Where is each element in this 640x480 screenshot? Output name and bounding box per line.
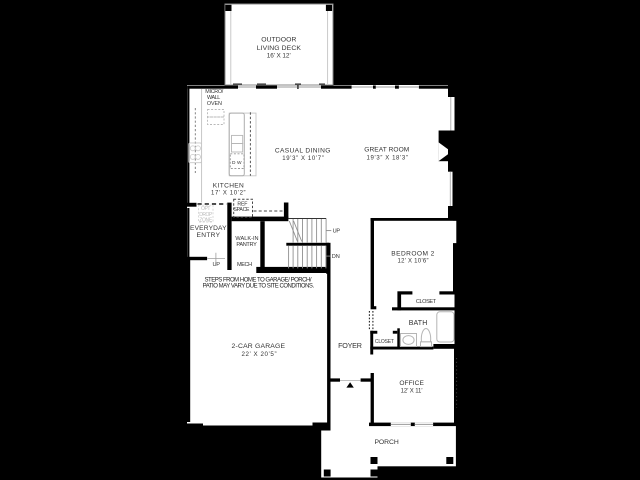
svg-text:PORCH: PORCH [374, 439, 398, 446]
svg-text:CASUAL DINING: CASUAL DINING [275, 147, 331, 154]
svg-text:17’ X 10’2”: 17’ X 10’2” [211, 190, 245, 196]
svg-text:19’3” X 10’7”: 19’3” X 10’7” [282, 156, 324, 162]
svg-text:OUTDOOR: OUTDOOR [261, 37, 296, 44]
svg-text:12’ X 10’6”: 12’ X 10’6” [398, 258, 429, 264]
svg-text:16’ X 12’: 16’ X 12’ [267, 52, 292, 59]
svg-text:MECH: MECH [237, 262, 252, 268]
svg-text:UP: UP [333, 229, 341, 235]
svg-text:OFFICE: OFFICE [399, 380, 424, 387]
svg-text:ZONE: ZONE [199, 218, 213, 224]
svg-text:PATIO MAY VARY DUE TO SITE CON: PATIO MAY VARY DUE TO SITE CONDITIONS. [203, 284, 315, 290]
svg-text:KITCHEN: KITCHEN [213, 182, 244, 189]
svg-text:2-CAR GARAGE: 2-CAR GARAGE [232, 343, 286, 350]
svg-text:UP: UP [212, 262, 220, 268]
svg-text:CLOSET: CLOSET [375, 339, 394, 345]
svg-text:19’3” X 18’3”: 19’3” X 18’3” [367, 155, 408, 161]
svg-text:22’ X 20’5”: 22’ X 20’5” [242, 351, 277, 358]
svg-text:DW: DW [232, 160, 242, 166]
svg-text:GREAT ROOM: GREAT ROOM [364, 147, 409, 154]
svg-text:OVEN: OVEN [207, 101, 222, 107]
svg-text:SPACE: SPACE [234, 207, 251, 213]
svg-text:BEDROOM 2: BEDROOM 2 [391, 250, 434, 257]
svg-text:BATH: BATH [409, 320, 428, 327]
svg-text:FOYER: FOYER [338, 341, 362, 350]
svg-text:PANTRY: PANTRY [236, 242, 257, 248]
svg-text:LIVING DECK: LIVING DECK [257, 45, 302, 52]
svg-text:12’ X 11’: 12’ X 11’ [401, 388, 423, 394]
svg-text:EVERYDAY: EVERYDAY [190, 225, 227, 232]
svg-text:CLOSET: CLOSET [416, 299, 437, 305]
svg-text:STEPS FROM HOME TO GARAGE/ POR: STEPS FROM HOME TO GARAGE/ PORCH/ [205, 277, 312, 283]
svg-text:DN: DN [332, 254, 340, 260]
svg-text:ENTRY: ENTRY [197, 232, 221, 239]
